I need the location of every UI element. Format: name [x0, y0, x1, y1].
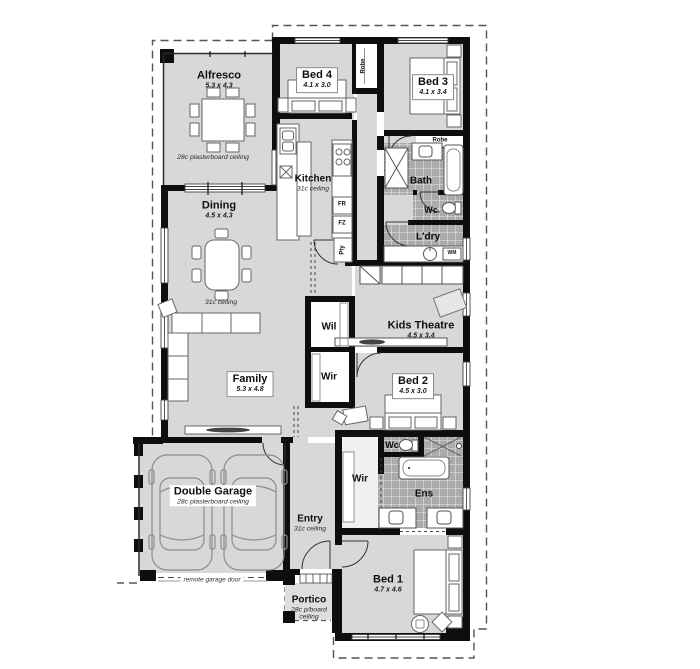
- dining-dims: 4.5 x 4.3: [202, 212, 236, 220]
- kids-theatre-dims: 4.5 x 3.4: [388, 332, 455, 340]
- alfresco-name: Alfresco: [197, 70, 241, 83]
- bed2-dims: 4.5 x 3.0: [398, 388, 428, 396]
- garage-ceiling: 28c plasterboard ceiling: [174, 498, 252, 506]
- bed1-name: Bed 1: [373, 574, 403, 587]
- bed4-dims: 4.1 x 3.0: [302, 82, 332, 90]
- room-label-bath: Bath: [410, 175, 432, 187]
- room-label-bed2: Bed 2 4.5 x 3.0: [392, 373, 434, 399]
- room-label-portico: Portico 28c p/board ceiling: [291, 594, 327, 621]
- fridge-label: FR: [338, 202, 346, 209]
- entry-name: Entry: [294, 513, 326, 525]
- room-label-bed3: Bed 3 4.1 x 3.4: [412, 74, 454, 100]
- floor-plan-drawing: [0, 0, 700, 669]
- dining-ceiling-note: 31c ceiling: [205, 299, 237, 307]
- laundry-name: L'dry: [416, 231, 440, 243]
- room-label-ens: Ens: [415, 488, 433, 500]
- room-label-bed4: Bed 4 4.1 x 3.0: [296, 67, 338, 93]
- portico-ceiling-1: 28c p/board: [291, 606, 327, 614]
- freezer-label: FZ: [338, 221, 345, 228]
- room-label-alfresco: Alfresco 5.3 x 4.3: [197, 70, 241, 91]
- bed3-dims: 4.1 x 3.4: [418, 89, 448, 97]
- ens-name: Ens: [415, 488, 433, 500]
- room-label-laundry: L'dry: [416, 231, 440, 243]
- kids-theatre-name: Kids Theatre: [388, 320, 455, 333]
- kitchen-ceiling: 31c ceiling: [295, 185, 332, 193]
- robe-bed3-label: Robe: [433, 138, 448, 145]
- garage-name: Double Garage: [174, 485, 252, 498]
- alfresco-dims: 5.3 x 4.3: [197, 82, 241, 90]
- room-label-family: Family 5.3 x 4.8: [227, 371, 274, 397]
- wir-bed2-name: Wir: [321, 371, 337, 383]
- wc-upper-name: Wc: [424, 205, 438, 215]
- entry-ceiling: 31c ceiling: [294, 525, 326, 533]
- room-label-wir-bed2: Wir: [321, 371, 337, 383]
- room-label-wil: Wil: [322, 321, 337, 333]
- room-label-entry: Entry 31c ceiling: [294, 513, 326, 532]
- bed1-dims: 4.7 x 4.6: [373, 586, 403, 594]
- portico-name: Portico: [291, 594, 327, 606]
- pantry-label: Pty: [340, 245, 347, 254]
- bed2-name: Bed 2: [398, 375, 428, 388]
- family-dims: 5.3 x 4.8: [233, 386, 268, 394]
- floor-plan: Alfresco 5.3 x 4.3 28c plasterboard ceil…: [0, 0, 700, 669]
- wil-name: Wil: [322, 321, 337, 333]
- room-label-kids-theatre: Kids Theatre 4.5 x 3.4: [388, 320, 455, 341]
- wc-ens-name: Wc: [385, 440, 399, 450]
- alfresco-ceiling-note: 28c plasterboard ceiling: [177, 154, 249, 162]
- washing-machine-label: WM: [448, 251, 457, 257]
- room-label-garage: Double Garage 28c plasterboard ceiling: [170, 485, 256, 506]
- bed3-name: Bed 3: [418, 76, 448, 89]
- garage-door-note: remote garage door: [180, 576, 243, 583]
- family-name: Family: [233, 373, 268, 386]
- wir-bed1-name: Wir: [352, 473, 368, 485]
- kitchen-name: Kitchen: [295, 173, 332, 185]
- portico-ceiling-2: ceiling: [291, 614, 327, 622]
- bed4-name: Bed 4: [302, 69, 332, 82]
- bed1-furniture: [412, 536, 463, 633]
- room-label-wc-ens: Wc: [385, 440, 399, 450]
- room-label-dining: Dining 4.5 x 4.3: [202, 200, 236, 221]
- robe-bed4-label: Robe: [361, 59, 368, 74]
- room-label-wir-bed1: Wir: [352, 473, 368, 485]
- bath-name: Bath: [410, 175, 432, 187]
- room-label-bed1: Bed 1 4.7 x 4.6: [373, 574, 403, 595]
- dining-name: Dining: [202, 200, 236, 213]
- room-label-kitchen: Kitchen 31c ceiling: [295, 173, 332, 192]
- room-label-wc-upper: Wc: [424, 205, 438, 215]
- entry-steps: [300, 574, 332, 583]
